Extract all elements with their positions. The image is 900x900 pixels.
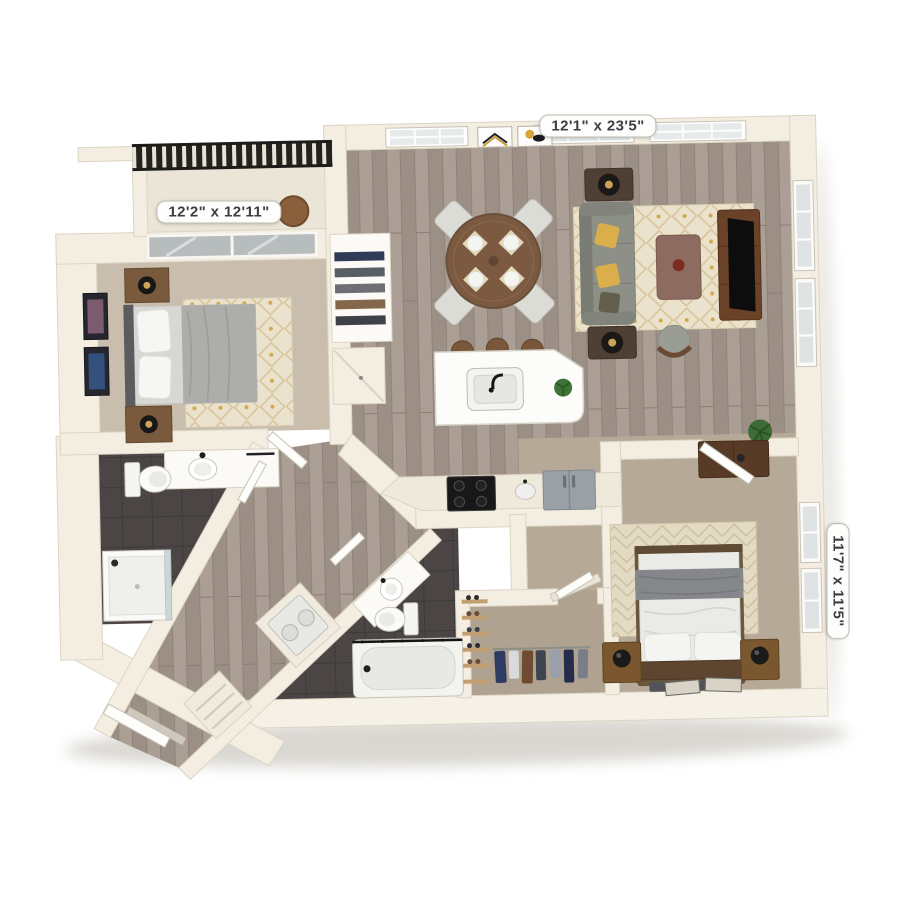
dimension-label-living: 12'1" x 23'5" bbox=[539, 115, 656, 138]
bedroom2-nightstand-left bbox=[602, 642, 641, 683]
place-setting bbox=[503, 235, 519, 251]
bedroom2-bed bbox=[630, 544, 749, 686]
wall-bath2-bedroom2 bbox=[510, 514, 528, 594]
place-setting bbox=[504, 271, 520, 287]
bedroom1-wall-art-1 bbox=[83, 293, 108, 339]
dimension-label-bedroom2: 11'7" x 11'5" bbox=[827, 523, 850, 639]
end-table-north bbox=[585, 168, 634, 201]
tv-console bbox=[717, 209, 761, 320]
accent-chair bbox=[658, 325, 691, 358]
shower-glass bbox=[164, 550, 171, 620]
floor-plan-page: 12'1" x 23'5" 12'2" x 12'11" 11'7" x 11'… bbox=[0, 0, 900, 900]
floor-plan-rendering bbox=[0, 0, 900, 900]
balcony-bistro-table bbox=[278, 196, 309, 227]
wall-art-chevron bbox=[478, 127, 512, 148]
coffee-table bbox=[656, 235, 701, 300]
gray-throw-blanket bbox=[635, 568, 744, 600]
wall-bedroom2-north-a bbox=[620, 440, 702, 460]
window-living-right-1 bbox=[793, 180, 815, 270]
throw-pillow-yellow bbox=[595, 263, 621, 289]
window-top-1 bbox=[386, 127, 468, 148]
throw-pillow-olive bbox=[598, 292, 620, 314]
bedroom2-headboard bbox=[633, 660, 749, 680]
window-bedroom2-right-2 bbox=[801, 568, 822, 632]
sofa bbox=[579, 202, 636, 325]
island-sink bbox=[467, 367, 524, 410]
balcony-railing bbox=[132, 140, 333, 170]
wall-left-bedroom1 bbox=[56, 233, 101, 450]
sliding-glass-door bbox=[148, 233, 316, 259]
dimension-label-bedroom1: 12'2" x 12'11" bbox=[156, 201, 281, 224]
place-setting bbox=[467, 235, 483, 251]
window-living-right-2 bbox=[795, 278, 817, 366]
end-table-south bbox=[588, 326, 637, 359]
refrigerator bbox=[543, 470, 596, 510]
tv bbox=[728, 218, 756, 313]
walk-in-shower bbox=[102, 550, 171, 621]
bathtub bbox=[352, 638, 463, 698]
range bbox=[447, 476, 496, 511]
bedroom2-nightstand-right bbox=[740, 639, 779, 680]
dimension-text-bedroom1: 12'2" x 12'11" bbox=[168, 204, 269, 221]
window-top-3 bbox=[650, 121, 746, 142]
bedroom1-nightstand-top bbox=[125, 268, 170, 303]
bedroom1-cabinet bbox=[332, 347, 385, 404]
window-bedroom2-right-1 bbox=[800, 502, 821, 562]
floor-picture-frame bbox=[665, 680, 700, 696]
floor-picture-frame bbox=[705, 678, 741, 692]
wall-stub-top-left bbox=[78, 147, 134, 162]
bedroom1-bed bbox=[123, 302, 257, 407]
wall-left-lower bbox=[56, 435, 103, 660]
wall-bedroom2-north-b bbox=[764, 438, 798, 457]
bedroom1-closet-shelves bbox=[330, 233, 392, 342]
bedroom1-nightstand-bottom bbox=[125, 406, 172, 443]
dimension-text-bedroom2: 11'7" x 11'5" bbox=[830, 535, 847, 627]
dining-set bbox=[431, 197, 557, 327]
bedroom1-wall-art-2 bbox=[84, 347, 109, 395]
dimension-text-living: 12'1" x 23'5" bbox=[551, 118, 644, 135]
place-setting bbox=[468, 271, 484, 287]
